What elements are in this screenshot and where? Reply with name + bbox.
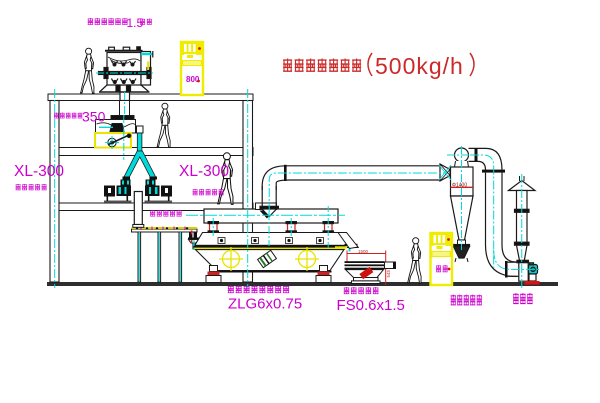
svg-text:1500: 1500 [358, 249, 369, 254]
svg-text:FS0.6x1.5: FS0.6x1.5 [337, 297, 405, 314]
svg-text:1.5: 1.5 [127, 16, 144, 30]
svg-text:350: 350 [82, 109, 106, 125]
svg-text:545: 545 [386, 269, 391, 277]
svg-text:XL-300: XL-300 [14, 163, 64, 180]
svg-text:800: 800 [186, 75, 200, 84]
svg-text:ZLG6x0.75: ZLG6x0.75 [228, 296, 302, 313]
svg-text:500kg/h: 500kg/h [375, 53, 464, 79]
svg-text:XL-300: XL-300 [179, 163, 229, 180]
svg-text:Φ1400: Φ1400 [452, 183, 467, 189]
